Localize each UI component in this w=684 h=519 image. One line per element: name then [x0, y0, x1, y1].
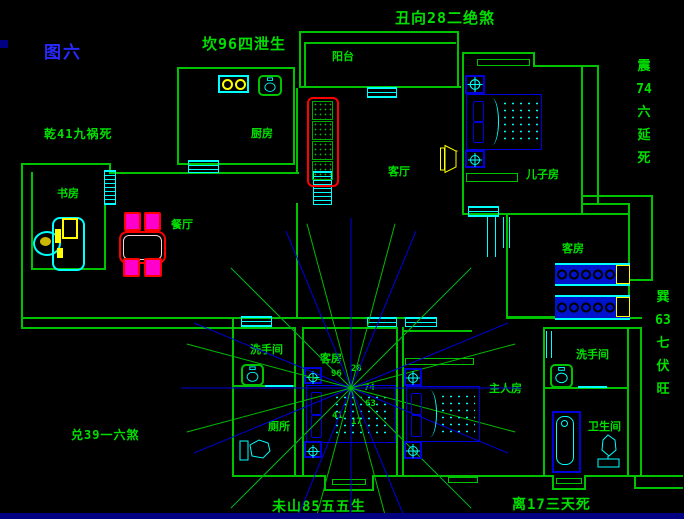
wall-segment [402, 330, 472, 332]
wall-segment [630, 279, 653, 281]
pillow [473, 101, 484, 122]
floorplan-canvas: 图六 丑向28二绝煞 坎96四泄生 乾41九祸死 兑39一六煞 未山85五五生 … [0, 0, 684, 519]
wall-segment [104, 203, 106, 270]
wall-segment [294, 327, 296, 477]
wall-segment [462, 52, 464, 215]
stair-room-window [367, 317, 397, 327]
wall-segment [177, 67, 295, 69]
table-inner-line [123, 235, 162, 260]
wall-segment [533, 65, 583, 67]
bottom-strip [0, 513, 684, 519]
pillow [616, 297, 630, 317]
door-threshold [556, 478, 582, 484]
wall-segment [651, 195, 653, 281]
wall-segment [302, 327, 398, 329]
wall-segment [31, 172, 33, 270]
room-label-washroom-left: 洗手间 [250, 341, 283, 357]
son-room-door [487, 215, 496, 257]
stove-burner [235, 79, 246, 90]
nightstand [404, 368, 422, 386]
chair-seat [40, 237, 51, 246]
mattress-dots [439, 393, 475, 435]
bed [406, 386, 480, 442]
dining-chair [124, 212, 141, 231]
room-label-son-room: 儿子房 [526, 166, 559, 182]
room-label-washroom-right: 洗手间 [576, 346, 609, 362]
room-label-living-room: 客厅 [388, 163, 410, 179]
wall-segment [581, 65, 583, 215]
tv-icon [440, 145, 458, 173]
wall-segment [304, 42, 306, 86]
edge-artifact [0, 40, 8, 48]
wall-segment [21, 163, 111, 165]
wall-segment [462, 52, 535, 54]
toilet-icon [239, 437, 273, 463]
wall-segment [627, 327, 629, 477]
room-label-dining: 餐厅 [171, 216, 193, 232]
wall-segment [597, 65, 599, 205]
wall-segment [177, 67, 179, 165]
compass-label-right-upper: 震 74 六 延 死 [633, 55, 655, 170]
wall-segment [640, 327, 642, 477]
bed [466, 94, 542, 150]
compass-label-top: 丑向28二绝煞 [395, 7, 495, 28]
nightstand [465, 150, 485, 168]
bed-sheet-arc [423, 390, 437, 437]
washroom-right-door [546, 331, 552, 358]
washroom-window [241, 316, 272, 327]
wall-segment [232, 317, 234, 477]
study-window [104, 170, 116, 205]
figure-caption: 图六 [44, 38, 82, 63]
washroom-left-door [265, 385, 293, 387]
room-label-balcony: 阳台 [332, 48, 354, 64]
dining-chair [123, 258, 140, 277]
compass-label-right-lower: 巽 63 七 伏 旺 [652, 286, 674, 401]
guest-room-door [503, 217, 510, 248]
room-label-guest-room-right: 客房 [562, 240, 584, 256]
wall-segment [293, 67, 295, 165]
desk-lamp-icon [57, 248, 63, 258]
door-threshold [448, 477, 478, 483]
pillow [473, 122, 484, 143]
room-label-study: 书房 [57, 185, 79, 201]
sofa-cushion [312, 141, 333, 160]
cabinet-shelf [466, 173, 518, 182]
dining-chair [144, 212, 161, 231]
wall-segment [552, 488, 586, 490]
wall-segment [506, 213, 630, 215]
nightstand [404, 441, 422, 459]
wall-segment [304, 42, 456, 44]
wall-segment [21, 327, 296, 329]
stove-burner [222, 79, 233, 90]
compass-label-left-upper: 乾41九祸死 [44, 125, 112, 142]
wall-segment [299, 31, 301, 87]
sofa-cushion [312, 101, 333, 120]
bay-window-shelf [477, 59, 530, 66]
sofa-cushion [312, 121, 333, 140]
room-label-bathroom: 卫生间 [588, 418, 621, 434]
keyboard-icon [55, 229, 61, 243]
nightstand [465, 75, 485, 94]
stair-compass-rays [302, 330, 398, 476]
wall-segment [543, 327, 545, 477]
wall-segment [634, 487, 683, 489]
sofa [307, 97, 339, 187]
pillow [411, 415, 422, 437]
bed-sheet-arc [485, 98, 499, 145]
room-label-kitchen: 厨房 [251, 125, 273, 141]
kitchen-sink [258, 75, 282, 96]
wall-segment [296, 203, 298, 319]
wall-segment [296, 88, 298, 172]
washbasin [550, 364, 573, 388]
kitchen-window [188, 160, 219, 173]
room-label-toilet-room: 厕所 [268, 418, 290, 434]
wall-segment [583, 195, 653, 197]
pillow [616, 265, 630, 284]
compass-label-left-lower: 兑39一六煞 [71, 426, 139, 443]
wall-segment [299, 31, 459, 33]
wall-segment [324, 489, 374, 491]
mattress-dots [501, 100, 539, 144]
bathroom-door [578, 386, 607, 388]
bathtub-drain [561, 420, 568, 427]
balcony-window [367, 87, 397, 98]
sofa-cushion [312, 161, 333, 180]
wall-segment [21, 163, 23, 329]
wall-segment [583, 203, 630, 205]
bathtub [552, 411, 581, 473]
toilet-icon [595, 434, 623, 470]
wall-segment [457, 31, 459, 87]
monitor-icon [62, 218, 78, 239]
stove [218, 75, 249, 93]
compass-label-top-left: 坎96四泄生 [202, 33, 286, 54]
pillow [411, 393, 422, 415]
compass-label-bottom-right: 离17三天死 [512, 494, 591, 514]
washbasin [241, 364, 264, 386]
door-threshold [332, 479, 366, 485]
dining-chair [144, 258, 162, 277]
